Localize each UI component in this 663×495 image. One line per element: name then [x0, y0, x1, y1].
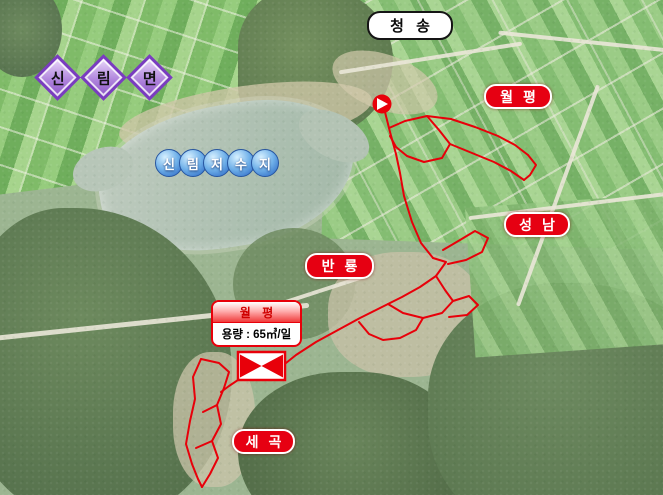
- pipeline-segok-loop-left: [186, 359, 202, 487]
- pipeline-ballyong-cluster-2: [449, 296, 478, 317]
- village-label-seongnam: 성 남: [504, 212, 570, 237]
- pipeline-segok-cross-1: [203, 405, 217, 412]
- facility-info-box: 월 평 용량 : 65㎥/일: [211, 300, 302, 347]
- myeon-label-char: 면: [143, 67, 157, 88]
- myeon-label-char: 림: [97, 67, 111, 88]
- pipeline-wolpyeong-diag-1: [389, 116, 528, 155]
- pipeline-segok-cross-2: [196, 441, 212, 448]
- reservoir-label-circle: 지: [251, 149, 279, 177]
- flow-arrow-icon: [373, 95, 392, 114]
- pipeline-wolpyeong-connector: [524, 155, 536, 180]
- pipeline-ballyong-cluster-1: [388, 276, 453, 318]
- village-label-ballyong: 반 룡: [305, 253, 374, 279]
- pipeline-ballyong-cluster-3: [359, 318, 423, 340]
- village-label-segok: 세 곡: [232, 429, 295, 454]
- village-label-wolpyeong: 월 평: [484, 84, 552, 109]
- treatment-plant-symbol: [238, 352, 285, 380]
- myeon-label-char: 신: [51, 67, 65, 88]
- city-label-cheongsong: 청 송: [367, 11, 453, 40]
- pipeline-segok-loop-right: [201, 359, 229, 487]
- facility-name: 월 평: [213, 302, 300, 323]
- pipeline-seongnam-loop: [443, 231, 488, 264]
- pipeline-trunk: [385, 112, 433, 258]
- pipeline-wolpyeong-diag-2: [450, 144, 524, 180]
- satellite-map: 청 송 신 림 면 신 림 저 수 지 월 평 성 남 반 룡 세 곡 월 평 …: [0, 0, 663, 495]
- facility-capacity: 용량 : 65㎥/일: [213, 323, 300, 345]
